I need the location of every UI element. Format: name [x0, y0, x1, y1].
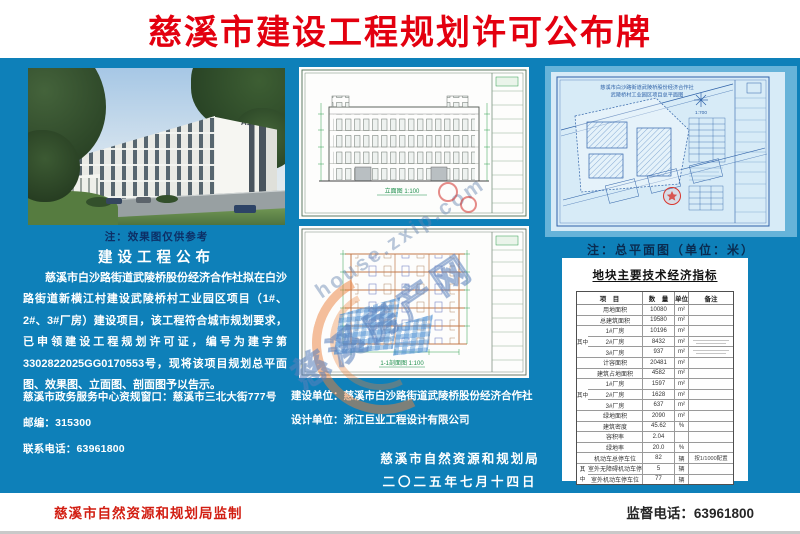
- remark-cell: [689, 358, 733, 369]
- qty-cell: 1597: [643, 379, 675, 390]
- designer-line: 设计单位：浙江巨业工程设计有限公司: [291, 412, 543, 427]
- photo-car: [106, 198, 122, 204]
- issuing-agency: 慈溪市自然资源和规划局: [330, 448, 590, 467]
- remark-cell: [689, 305, 733, 316]
- item-cell: 2#厂房: [588, 337, 643, 348]
- item-cell: 3#厂房: [588, 400, 643, 411]
- indicator-row: 其中 2#厂房 8432 m²: [577, 337, 733, 348]
- group-cell: [577, 453, 588, 464]
- supervising-agency: 慈溪市自然资源和规划局监制: [54, 502, 243, 522]
- announcement-body: 慈溪市白沙路街道武陵桥股份经济合作社拟在白沙路街道新横江村建设武陵桥村工业园区项…: [23, 268, 287, 397]
- item-cell: 容积率: [588, 432, 643, 443]
- indicators-sheet: 地块主要技术经济指标 项 目 数 量 单位 备注 用地面积: [562, 258, 748, 481]
- plan-title-line1: 慈溪市白沙路街道武陵桥股份经济合作社: [600, 83, 693, 91]
- item-cell: 1#厂房: [588, 379, 643, 390]
- unit-cell: 辆: [675, 475, 689, 485]
- contact-block: 慈溪市政务服务中心资规窗口：慈溪市三北大街777号 邮编：315300 联系电话…: [23, 389, 291, 467]
- elevation-caption: 立面图 1:100: [385, 187, 420, 195]
- remark-cell: [689, 475, 733, 485]
- group-cell: [577, 305, 588, 316]
- builder-line: 建设单位：慈溪市白沙路街道武陵桥股份经济合作社: [291, 388, 543, 403]
- unit-cell: m²: [675, 347, 689, 358]
- item-cell: 室外无障碍机动车停车位: [588, 464, 643, 475]
- elevation-drawing: 立面图 1:100: [299, 67, 529, 219]
- red-seal: [664, 188, 681, 205]
- qty-cell: 10080: [643, 305, 675, 316]
- qty-cell: 2.04: [643, 432, 675, 443]
- unit-cell: 辆: [675, 453, 689, 464]
- elevation-drawing-sheet: 立面图 1:100: [299, 67, 529, 219]
- qty-cell: 937: [643, 347, 675, 358]
- plan-legend-table: [689, 118, 725, 162]
- qty-cell: 19580: [643, 316, 675, 327]
- qty-cell: 637: [643, 400, 675, 411]
- unit-cell: m²: [675, 379, 689, 390]
- indicators-title: 地块主要技术经济指标: [562, 267, 748, 283]
- qty-cell: 10196: [643, 326, 675, 337]
- titleblock-logo: [496, 77, 518, 86]
- group-cell: [577, 379, 588, 390]
- plan-building: [587, 122, 627, 148]
- indicator-row: 1#厂房 1597 m²: [577, 379, 733, 390]
- unit-cell: m²: [675, 337, 689, 348]
- loading-door: [355, 167, 371, 181]
- site-plan-note: 注：总平面图（单位：米）: [545, 241, 797, 258]
- indicator-row: 容积率 2.04: [577, 432, 733, 443]
- photo-disclaimer: 注：效果图仅供参考: [28, 229, 285, 244]
- site-plan-paper: 慈溪市白沙路街道武陵桥股份经济合作社 武陵桥村工业园区项目总平面图 1:700: [551, 72, 785, 231]
- item-cell: 绿地率: [588, 443, 643, 454]
- section-drawing-sheet: 1-1剖面图 1:100: [299, 226, 529, 378]
- unit-cell: m²: [675, 390, 689, 401]
- remark-cell: [689, 464, 733, 475]
- item-cell: 3#厂房: [588, 347, 643, 358]
- remark-cell: [689, 443, 733, 454]
- item-cell: 绿地面积: [588, 411, 643, 422]
- qty-cell: 20481: [643, 358, 675, 369]
- notice-board: 慈溪市建设工程规划许可公布牌 A1 注：效果图仅供参考 建设工程公布 慈溪市白沙…: [0, 0, 800, 534]
- plan-notes: [689, 168, 723, 180]
- unit-cell: [675, 432, 689, 443]
- unit-cell: %: [675, 422, 689, 433]
- plan-building: [637, 128, 671, 176]
- group-cell: [577, 422, 588, 433]
- indicators-table: 项 目 数 量 单位 备注 用地面积 10080 m²: [576, 291, 734, 485]
- remark-cell: [689, 400, 733, 411]
- indicator-row: 机动车总停车位 82 辆 按1/1000配置: [577, 453, 733, 464]
- remark-cell: [689, 390, 733, 401]
- unit-cell: m²: [675, 305, 689, 316]
- postcode-line: 邮编：315300: [23, 415, 291, 430]
- header-band: 慈溪市建设工程规划许可公布牌: [0, 0, 800, 58]
- announcement-title: 建设工程公布: [28, 246, 285, 267]
- col-qty: 数 量: [643, 292, 675, 305]
- indicator-row: 其 室外无障碍机动车停车位 5 辆: [577, 464, 733, 475]
- service-window-line: 慈溪市政务服务中心资规窗口：慈溪市三北大街777号: [23, 389, 291, 404]
- group-cell: [577, 316, 588, 327]
- section-drawing: 1-1剖面图 1:100: [299, 226, 529, 378]
- indicator-row: 中 室外机动车停车位 77 辆: [577, 475, 733, 485]
- unit-cell: %: [675, 443, 689, 454]
- indicator-row: 其中 2#厂房 1628 m²: [577, 390, 733, 401]
- item-cell: 机动车总停车位: [588, 453, 643, 464]
- indicators-table-body: 用地面积 10080 m² 总建筑面积 19580 m²: [577, 305, 733, 484]
- group-cell: 其中: [577, 390, 588, 401]
- unit-cell: m²: [675, 358, 689, 369]
- remark-cell: [689, 369, 733, 380]
- group-cell: [577, 347, 588, 358]
- titleblock-logo: [496, 236, 518, 245]
- group-cell: [577, 369, 588, 380]
- indicator-row: 绿地面积 2090 m²: [577, 411, 733, 422]
- item-cell: 总建筑面积: [588, 316, 643, 327]
- qty-cell: 20.0: [643, 443, 675, 454]
- site-plan-panel: 慈溪市白沙路街道武陵桥股份经济合作社 武陵桥村工业园区项目总平面图 1:700: [545, 66, 797, 237]
- remark-cell: 按1/1000配置: [689, 453, 733, 464]
- qty-cell: 2090: [643, 411, 675, 422]
- remark-cell: [689, 316, 733, 327]
- qty-cell: 1628: [643, 390, 675, 401]
- item-cell: 1#厂房: [588, 326, 643, 337]
- remark-cell: [689, 337, 733, 348]
- rendering-photo: A1: [28, 68, 285, 225]
- group-cell: 中: [577, 475, 588, 485]
- col-unit: 单位: [675, 292, 689, 305]
- indicator-row: 总建筑面积 19580 m²: [577, 316, 733, 327]
- remark-cell: [689, 411, 733, 422]
- qty-cell: 45.62: [643, 422, 675, 433]
- group-cell: [577, 443, 588, 454]
- indicator-row: 计容面积 20481 m²: [577, 358, 733, 369]
- indicator-row: 用地面积 10080 m²: [577, 305, 733, 316]
- remark-cell: [689, 422, 733, 433]
- group-cell: [577, 400, 588, 411]
- indicator-row: 3#厂房 937 m²: [577, 347, 733, 358]
- remark-cell: [689, 347, 733, 358]
- photo-car: [136, 197, 151, 203]
- page-title: 慈溪市建设工程规划许可公布牌: [148, 5, 652, 54]
- photo-car: [234, 205, 256, 213]
- indicators-header-row: 项 目 数 量 单位 备注: [577, 292, 733, 305]
- footer-band: 慈溪市自然资源和规划局监制 监督电话：63961800: [0, 493, 800, 534]
- unit-cell: m²: [675, 411, 689, 422]
- col-remark: 备注: [689, 292, 733, 305]
- item-cell: 建筑密度: [588, 422, 643, 433]
- qty-cell: 8432: [643, 337, 675, 348]
- unit-cell: 辆: [675, 464, 689, 475]
- item-cell: 计容面积: [588, 358, 643, 369]
- group-cell: [577, 326, 588, 337]
- group-cell: 其: [577, 464, 588, 475]
- unit-cell: m²: [675, 326, 689, 337]
- item-cell: 室外机动车停车位: [588, 475, 643, 485]
- unit-cell: m²: [675, 316, 689, 327]
- qty-cell: 77: [643, 475, 675, 485]
- issue-date: 二〇二五年七月十四日: [330, 471, 590, 490]
- indicator-row: 建筑占地面积 4582 m²: [577, 369, 733, 380]
- plan-subtable: [689, 186, 723, 210]
- site-plan-drawing: 慈溪市白沙路街道武陵桥股份经济合作社 武陵桥村工业园区项目总平面图 1:700: [551, 72, 785, 231]
- loading-door: [431, 167, 447, 181]
- item-cell: 用地面积: [588, 305, 643, 316]
- remark-cell: [689, 379, 733, 390]
- supervision-phone: 监督电话：63961800: [626, 502, 754, 522]
- unit-cell: m²: [675, 400, 689, 411]
- indicator-row: 1#厂房 10196 m²: [577, 326, 733, 337]
- item-cell: 建筑占地面积: [588, 369, 643, 380]
- qty-cell: 5: [643, 464, 675, 475]
- phone-line: 联系电话：63961800: [23, 441, 291, 456]
- indicator-row: 建筑密度 45.62 %: [577, 422, 733, 433]
- plan-building: [589, 154, 623, 178]
- plan-title-line2: 武陵桥村工业园区项目总平面图: [611, 91, 684, 99]
- section-caption: 1-1剖面图 1:100: [380, 359, 424, 367]
- group-cell: [577, 411, 588, 422]
- group-cell: [577, 358, 588, 369]
- photo-bush: [156, 195, 178, 203]
- indicator-row: 3#厂房 637 m²: [577, 400, 733, 411]
- remark-cell: [689, 326, 733, 337]
- indicator-row: 绿地率 20.0 %: [577, 443, 733, 454]
- group-cell: [577, 432, 588, 443]
- group-cell: 其中: [577, 337, 588, 348]
- plan-scale: 1:700: [695, 110, 707, 116]
- qty-cell: 82: [643, 453, 675, 464]
- remark-cell: [689, 432, 733, 443]
- unit-cell: m²: [675, 369, 689, 380]
- col-item: 项 目: [577, 292, 643, 305]
- qty-cell: 4582: [643, 369, 675, 380]
- item-cell: 2#厂房: [588, 390, 643, 401]
- titleblock-logo: [747, 83, 761, 93]
